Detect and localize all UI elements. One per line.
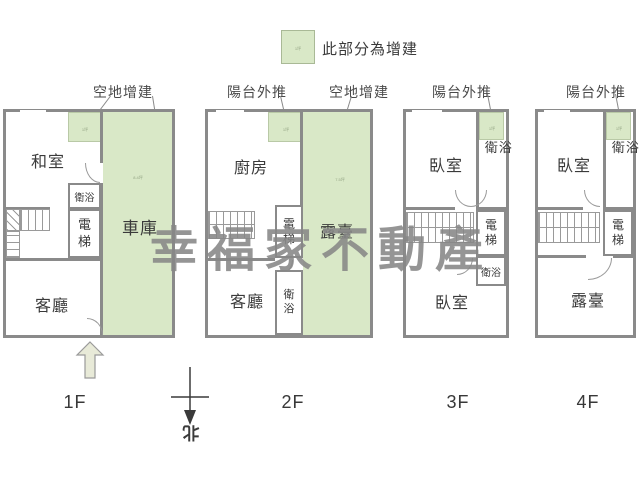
1f-patch-note: 1坪	[79, 127, 92, 133]
window-notch	[216, 110, 244, 112]
1f-room-tatami: 和室	[8, 148, 88, 172]
floor-label-3f: 3F	[438, 392, 478, 413]
2f-patch-note: 1坪	[280, 127, 293, 133]
4f-elevator-label: 電梯	[611, 218, 624, 248]
annotation-3f-balcony-pushout: 陽台外推	[432, 82, 492, 102]
window-notch	[20, 110, 46, 112]
compass-north-label: 北	[179, 427, 203, 447]
4f-addition-patch: 1坪	[606, 112, 631, 140]
annotation-2f-vacant-addition: 空地增建	[329, 82, 389, 102]
3f-bath-top-label: 衛浴	[485, 140, 499, 156]
wall	[6, 258, 100, 261]
legend-addition-swatch: 1坪	[281, 30, 315, 64]
4f-room-bath: 衛浴	[607, 140, 631, 156]
4f-room-elevator: 電梯	[603, 210, 633, 256]
annotation-1f-vacant-addition: 空地增建	[93, 82, 153, 102]
compass-icon	[165, 364, 215, 428]
entrance-arrow-icon	[75, 341, 105, 379]
floorplan-4f: 1坪 衛浴 臥室 電梯 露臺	[535, 109, 636, 338]
1f-bath-label: 衛浴	[75, 189, 95, 204]
1f-room-bath: 衛浴	[68, 183, 101, 209]
door-arc	[584, 190, 600, 207]
1f-garage-note: 8.4坪	[130, 175, 146, 181]
window-notch	[412, 110, 442, 112]
1f-stairs-lower	[6, 231, 20, 258]
2f-room-kitchen: 廚房	[220, 154, 282, 178]
door-arc	[455, 190, 471, 207]
1f-elevator-label: 電梯	[77, 217, 91, 250]
4f-patch-note: 1坪	[613, 126, 625, 132]
1f-room-living: 客廳	[12, 292, 92, 316]
wall	[100, 112, 103, 163]
1f-stairs-upper	[20, 209, 50, 231]
2f-room-living: 客廳	[216, 288, 278, 312]
1f-addition-patch: 1坪	[68, 112, 101, 142]
annotation-2f-balcony-pushout: 陽台外推	[227, 82, 287, 102]
2f-addition-patch: 1坪	[268, 112, 302, 142]
legend-swatch-note: 1坪	[292, 46, 305, 52]
wall	[538, 255, 586, 258]
wall	[613, 255, 633, 258]
3f-room-bath-top: 衛浴	[480, 140, 504, 156]
watermark-text: 幸福家不動產	[150, 210, 492, 280]
window-notch	[544, 110, 570, 112]
3f-addition-patch: 1坪	[479, 112, 504, 140]
4f-bath-label: 衛浴	[612, 140, 626, 156]
1f-room-elevator: 電梯	[68, 209, 101, 258]
3f-room-bedroom-bottom: 臥室	[422, 289, 482, 313]
legend-label: 此部分為增建	[322, 38, 418, 59]
4f-stairs-divider	[538, 227, 600, 228]
door-arc	[588, 258, 612, 280]
wall	[538, 207, 583, 210]
floor-label-4f: 4F	[568, 392, 608, 413]
3f-room-bedroom-top: 臥室	[416, 152, 476, 176]
floor-label-1f: 1F	[55, 392, 95, 413]
2f-bath-label: 衛浴	[283, 289, 295, 317]
2f-terrace-note: 7.5坪	[332, 177, 348, 183]
floor-label-2f: 2F	[273, 392, 313, 413]
1f-stairs-winder	[6, 209, 20, 231]
4f-room-bedroom: 臥室	[544, 152, 604, 176]
3f-patch-note: 1坪	[486, 126, 498, 132]
door-arc	[471, 190, 487, 207]
4f-room-terrace: 露臺	[558, 287, 618, 311]
